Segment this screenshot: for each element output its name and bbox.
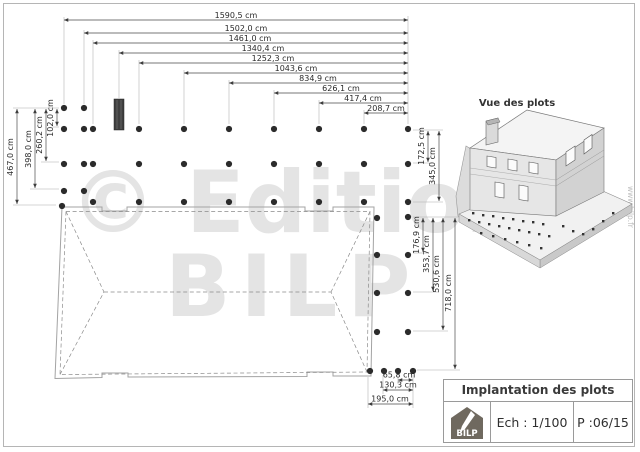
plot-dot: [316, 126, 322, 132]
plot-dot: [181, 126, 187, 132]
plot-dot: [81, 161, 87, 167]
dim-label: 1340,4 cm: [242, 44, 285, 53]
dim-label: 260,2 cm: [35, 116, 44, 154]
plot-dot: [316, 199, 322, 205]
plot-dot-3d: [504, 238, 506, 240]
bilp-logo-cell: BILP: [444, 402, 491, 443]
dim-label: 345,0 cm: [428, 147, 437, 185]
plot-dot: [81, 105, 87, 111]
title-block: Implantation des plots BILP Ech : 1/100 …: [443, 379, 633, 443]
plot-dot-3d: [548, 235, 550, 237]
plot-dot-3d: [472, 212, 474, 214]
watermark-line2: BILP: [165, 237, 420, 337]
dim-label: 626,1 cm: [322, 84, 360, 93]
dim-label: 834,9 cm: [299, 74, 337, 83]
plot-dot-3d: [532, 221, 534, 223]
plot-dot: [226, 199, 232, 205]
plot-dot: [405, 161, 411, 167]
plot-dot: [374, 329, 380, 335]
dim-label: 1502,0 cm: [225, 24, 268, 33]
house-front-wall: [470, 148, 556, 216]
dim-label: 1590,5 cm: [215, 11, 258, 20]
plot-dot: [61, 126, 67, 132]
plot-dot-3d: [508, 227, 510, 229]
dim-label: 130,3 cm: [379, 381, 417, 390]
plot-dot-3d: [572, 230, 574, 232]
dim-label: 1461,0 cm: [229, 34, 272, 43]
dim-label: 102,0 cm: [46, 99, 55, 137]
chimney: [114, 99, 124, 130]
plot-dot: [226, 161, 232, 167]
left-dimensions: 467,0 cm 398,0 cm 260,2 cm 102,0 cm: [6, 99, 59, 205]
plot-dot: [374, 215, 380, 221]
plot-dot: [61, 161, 67, 167]
page: © Editions BILP www.bilp.fr 1590,5 cm 15…: [0, 0, 640, 452]
plot-dot: [395, 368, 401, 374]
dim-label: 530,6 cm: [432, 255, 441, 293]
plot-dot: [136, 126, 142, 132]
dim-label: 172,5 cm: [417, 127, 426, 165]
plot-dot: [405, 290, 411, 296]
dim-label: 1043,6 cm: [275, 64, 318, 73]
plot-dot: [136, 161, 142, 167]
plot-dot-3d: [542, 223, 544, 225]
plot-dot: [410, 368, 416, 374]
plot-dot-3d: [528, 244, 530, 246]
plot-dot-3d: [502, 217, 504, 219]
plot-dot: [61, 105, 67, 111]
plot-dot: [59, 203, 65, 209]
dim-label: 176,9 cm: [412, 216, 421, 254]
dim-label: 1252,3 cm: [252, 54, 295, 63]
plot-dot-3d: [492, 235, 494, 237]
dim-label: 208,7 cm: [367, 104, 405, 113]
plot-dot: [367, 368, 373, 374]
plot-dot: [405, 252, 411, 258]
plot-dot: [405, 126, 411, 132]
plot-dot: [374, 290, 380, 296]
plot-dot: [361, 126, 367, 132]
plot-dot-3d: [482, 214, 484, 216]
plot-dot-3d: [592, 228, 594, 230]
plot-dot-3d: [612, 212, 614, 214]
plot-dot: [316, 161, 322, 167]
page-number-label: P :06/15: [574, 402, 632, 443]
plot-dot: [90, 126, 96, 132]
plot-dot: [181, 199, 187, 205]
plot-dot-3d: [498, 225, 500, 227]
plot-dot: [136, 199, 142, 205]
plot-dot-3d: [488, 223, 490, 225]
plot-dot: [405, 329, 411, 335]
plot-dot-3d: [538, 233, 540, 235]
dim-label: 195,0 cm: [371, 395, 409, 404]
dim-label: 417,4 cm: [344, 94, 382, 103]
plot-dot-3d: [492, 215, 494, 217]
dim-label: 398,0 cm: [24, 130, 33, 168]
bottom-dimensions: 65,8 cm 130,3 cm 195,0 cm: [368, 371, 417, 409]
plot-dot: [405, 199, 411, 205]
plot-dot-3d: [562, 225, 564, 227]
plot-dot: [271, 199, 277, 205]
plot-dot: [361, 199, 367, 205]
plot-dot: [381, 368, 387, 374]
title-block-title: Implantation des plots: [444, 380, 632, 402]
plot-dot: [61, 188, 67, 194]
plot-dot-3d: [478, 221, 480, 223]
plot-dot-3d: [468, 219, 470, 221]
plot-dot: [90, 199, 96, 205]
plot-dot-3d: [480, 232, 482, 234]
plot-dot: [374, 252, 380, 258]
vue-des-plots-title: Vue des plots: [479, 98, 555, 109]
plot-dot: [271, 126, 277, 132]
plot-dot-3d: [518, 229, 520, 231]
plot-dot-3d: [512, 218, 514, 220]
plot-dot: [271, 161, 277, 167]
plot-dot: [361, 161, 367, 167]
plot-dot-3d: [516, 241, 518, 243]
plot-dot: [81, 188, 87, 194]
plot-dot-3d: [528, 231, 530, 233]
plot-dot-3d: [582, 233, 584, 235]
plot-dot-3d: [522, 220, 524, 222]
plot-dot: [405, 214, 411, 220]
plot-dot: [81, 126, 87, 132]
plot-dot: [181, 161, 187, 167]
plot-dot-3d: [602, 220, 604, 222]
dim-label: 353,7 cm: [422, 235, 431, 273]
bilp-logo: BILP: [450, 406, 484, 440]
scale-label: Ech : 1/100: [491, 402, 574, 443]
plot-dot: [226, 126, 232, 132]
plot-dot: [90, 161, 96, 167]
plot-dot-3d: [540, 247, 542, 249]
dim-label: 467,0 cm: [6, 138, 15, 176]
dim-label: 718,0 cm: [444, 274, 453, 312]
bilp-logo-text: BILP: [456, 429, 477, 439]
